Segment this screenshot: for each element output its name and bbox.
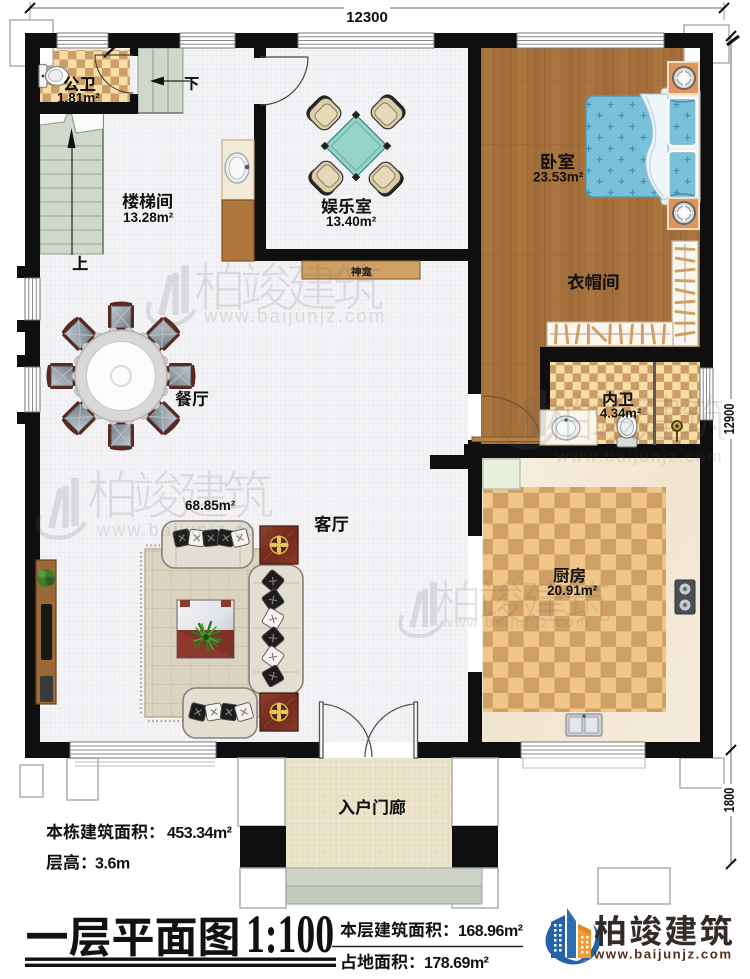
svg-text:1800: 1800 [720,788,737,813]
svg-text:178.69m²: 178.69m² [424,955,489,972]
svg-text:3.6m: 3.6m [95,856,130,873]
svg-text:www.baijunjz.com: www.baijunjz.com [96,520,275,540]
svg-text:www.baijunjz.com: www.baijunjz.com [593,947,733,962]
svg-text:4.34m²: 4.34m² [600,406,642,421]
svg-text:20.91m²: 20.91m² [547,583,598,598]
svg-text:13.28m²: 13.28m² [123,210,174,225]
svg-text:12900: 12900 [720,404,737,435]
svg-text:1:100: 1:100 [246,904,334,964]
svg-text:www.baijunjz.com: www.baijunjz.com [441,614,590,631]
svg-text:168.96m²: 168.96m² [458,923,523,940]
svg-text:1.81m²: 1.81m² [57,91,100,106]
svg-text:68.85m²: 68.85m² [185,498,236,513]
svg-text:12300: 12300 [346,9,388,26]
svg-text:www.baijunjz.com: www.baijunjz.com [203,305,387,326]
svg-text:www.baijunjz.com: www.baijunjz.com [555,447,724,466]
svg-text:23.53m²: 23.53m² [533,170,584,185]
svg-text:13.40m²: 13.40m² [326,214,377,229]
svg-text:453.34m²: 453.34m² [167,825,232,842]
